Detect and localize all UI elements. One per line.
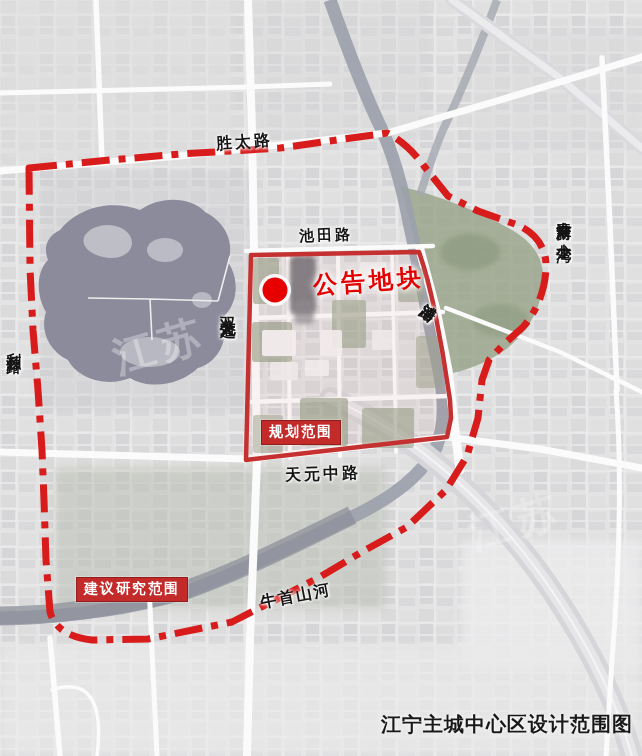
planning-map-figure: 江苏 江苏 胜太路 池田路 浦沿路 秦淮新河-小龙湾 双龙大道 利源路 天元中路… (0, 0, 642, 756)
site-marker (259, 274, 291, 306)
lake-shape (39, 200, 236, 385)
site-marker-dot (263, 278, 288, 303)
satellite-basemap (0, 0, 642, 756)
road-label-tianyuan: 天元中路 (285, 465, 362, 484)
road-label-liyuan: 利源路 (6, 341, 22, 350)
road-label-chitian: 池田路 (299, 226, 354, 244)
road-label-shuanglong: 双龙大道 (219, 304, 236, 312)
map-title: 江宁主城中心区设计范围图 (381, 714, 633, 735)
study-scope-tag: 建议研究范围 (76, 577, 188, 602)
lake-island (147, 238, 183, 262)
lake-peninsula (120, 337, 180, 367)
river-label-qinhuai: 秦淮新河-小龙湾 (556, 210, 572, 235)
planning-scope-tag: 规划范围 (261, 420, 341, 445)
